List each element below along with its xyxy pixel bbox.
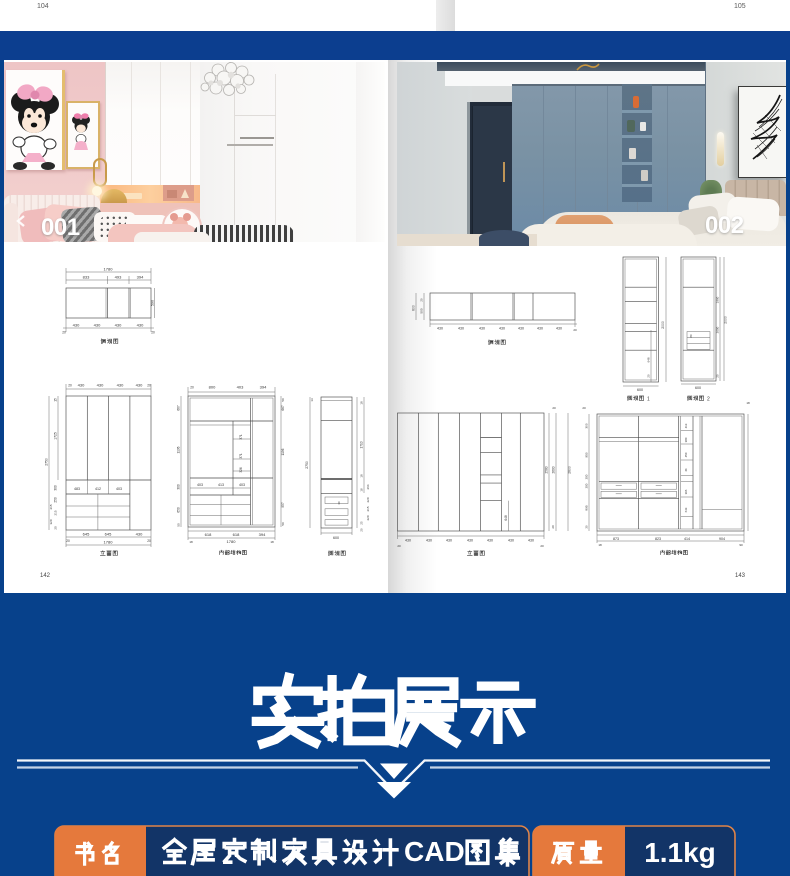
- svg-text:20: 20: [147, 539, 151, 543]
- svg-text:20: 20: [151, 331, 155, 335]
- svg-text:430: 430: [117, 383, 124, 388]
- svg-text:1196: 1196: [281, 448, 285, 455]
- svg-text:590: 590: [151, 300, 155, 306]
- svg-text:20: 20: [66, 539, 70, 543]
- svg-text:895: 895: [585, 505, 589, 510]
- svg-text:18: 18: [360, 401, 364, 405]
- svg-text:20: 20: [540, 544, 544, 548]
- svg-text:430: 430: [537, 327, 543, 331]
- svg-text:80: 80: [689, 334, 693, 338]
- svg-text:300: 300: [54, 485, 58, 491]
- svg-text:25: 25: [360, 521, 364, 525]
- svg-text:430: 430: [458, 327, 464, 331]
- svg-text:1960: 1960: [716, 296, 720, 303]
- svg-text:18: 18: [746, 401, 750, 405]
- svg-text:50: 50: [281, 398, 285, 402]
- svg-text:2580: 2580: [545, 466, 549, 473]
- svg-text:403: 403: [116, 487, 122, 491]
- svg-text:20: 20: [68, 384, 72, 388]
- svg-text:20: 20: [54, 526, 58, 530]
- svg-text:394: 394: [260, 385, 267, 390]
- svg-text:618: 618: [233, 532, 240, 537]
- svg-text:1: 1: [647, 397, 650, 403]
- svg-text:833: 833: [83, 275, 90, 280]
- svg-text:430: 430: [94, 323, 101, 328]
- svg-text:20: 20: [190, 386, 194, 390]
- svg-text:430: 430: [115, 323, 122, 328]
- svg-text:2: 2: [707, 397, 710, 403]
- svg-text:18: 18: [598, 543, 602, 547]
- svg-text:823: 823: [655, 537, 661, 541]
- svg-text:413: 413: [684, 423, 688, 428]
- svg-text:430: 430: [405, 539, 411, 543]
- svg-text:13: 13: [310, 398, 314, 402]
- svg-text:1136: 1136: [177, 446, 181, 453]
- svg-text:1780: 1780: [104, 540, 114, 545]
- svg-text:215: 215: [49, 504, 53, 509]
- svg-text:430: 430: [556, 327, 562, 331]
- svg-text:20: 20: [647, 374, 651, 378]
- svg-text:20: 20: [420, 298, 424, 302]
- svg-text:414: 414: [684, 537, 690, 541]
- svg-text:220: 220: [366, 515, 370, 520]
- svg-text:412: 412: [95, 487, 101, 491]
- svg-text:645: 645: [105, 532, 112, 537]
- svg-text:430: 430: [446, 539, 452, 543]
- svg-text:483: 483: [74, 487, 80, 491]
- svg-text:215: 215: [54, 510, 58, 515]
- svg-text:430: 430: [508, 539, 514, 543]
- svg-text:2600: 2600: [552, 466, 556, 473]
- svg-text:20: 20: [147, 384, 151, 388]
- svg-text:500: 500: [420, 308, 424, 313]
- svg-text:2750: 2750: [45, 458, 49, 466]
- svg-text:493: 493: [115, 275, 122, 280]
- svg-text:1780: 1780: [227, 539, 237, 544]
- svg-text:403: 403: [239, 483, 245, 487]
- svg-text:264: 264: [366, 484, 370, 489]
- svg-text:18: 18: [360, 474, 364, 478]
- svg-text:15: 15: [54, 398, 58, 402]
- svg-text:1725: 1725: [54, 432, 58, 440]
- svg-text:20: 20: [716, 374, 720, 378]
- svg-text:600: 600: [695, 386, 701, 390]
- svg-text:300: 300: [585, 423, 589, 428]
- svg-text:800: 800: [209, 385, 216, 390]
- svg-text:380: 380: [684, 437, 688, 442]
- svg-text:18: 18: [270, 540, 274, 544]
- svg-text:30: 30: [585, 525, 589, 529]
- svg-text:618: 618: [205, 532, 212, 537]
- svg-text:1780: 1780: [104, 267, 114, 272]
- svg-text:600: 600: [637, 388, 643, 392]
- svg-text:250: 250: [54, 497, 58, 503]
- svg-text:413: 413: [218, 483, 224, 487]
- svg-text:2600: 2600: [568, 466, 572, 474]
- svg-text:20: 20: [397, 544, 401, 548]
- svg-text:648: 648: [647, 357, 651, 362]
- svg-text:90: 90: [739, 543, 743, 547]
- svg-text:450: 450: [684, 452, 688, 457]
- svg-text:430: 430: [518, 327, 524, 331]
- svg-text:143: 143: [735, 573, 746, 579]
- svg-text:215: 215: [366, 506, 370, 511]
- svg-text:CAD: CAD: [404, 836, 465, 867]
- svg-text:371: 371: [239, 453, 243, 459]
- svg-text:1.1kg: 1.1kg: [644, 837, 716, 868]
- svg-text:20: 20: [360, 528, 364, 532]
- svg-text:20: 20: [573, 328, 577, 332]
- svg-text:300: 300: [177, 484, 181, 490]
- svg-text:371: 371: [239, 434, 243, 440]
- svg-text:320: 320: [49, 519, 53, 524]
- svg-text:50: 50: [177, 523, 181, 527]
- svg-text:326: 326: [239, 467, 243, 473]
- svg-text:873: 873: [613, 537, 619, 541]
- svg-text:20: 20: [552, 406, 556, 410]
- svg-text:904: 904: [719, 537, 725, 541]
- svg-text:18: 18: [360, 488, 364, 492]
- svg-text:600: 600: [412, 305, 416, 311]
- svg-text:394: 394: [259, 532, 266, 537]
- svg-text:30: 30: [337, 501, 341, 505]
- svg-text:667: 667: [281, 405, 285, 411]
- svg-text:44: 44: [684, 468, 688, 471]
- svg-text:2000: 2000: [716, 326, 720, 333]
- svg-text:430: 430: [499, 327, 505, 331]
- svg-text:430: 430: [78, 383, 85, 388]
- svg-text:430: 430: [426, 539, 432, 543]
- svg-text:2000: 2000: [661, 321, 665, 329]
- svg-text:430: 430: [136, 383, 143, 388]
- svg-text:403: 403: [197, 483, 203, 487]
- svg-text:430: 430: [437, 327, 443, 331]
- svg-text:20: 20: [62, 331, 66, 335]
- svg-text:667: 667: [177, 405, 181, 411]
- svg-text:2750: 2750: [305, 461, 309, 469]
- svg-text:2000: 2000: [724, 316, 728, 324]
- svg-text:650: 650: [177, 507, 181, 513]
- svg-text:430: 430: [136, 532, 143, 537]
- svg-text:50: 50: [281, 522, 285, 526]
- svg-text:430: 430: [137, 323, 144, 328]
- svg-text:200: 200: [585, 474, 589, 479]
- svg-text:648: 648: [504, 515, 508, 521]
- svg-text:643: 643: [684, 507, 688, 512]
- svg-text:142: 142: [40, 573, 51, 579]
- svg-text:396: 396: [684, 489, 688, 494]
- svg-text:18: 18: [189, 540, 193, 544]
- svg-text:403: 403: [237, 385, 244, 390]
- svg-text:20: 20: [551, 525, 555, 529]
- svg-text:950: 950: [585, 452, 589, 457]
- svg-text:430: 430: [73, 323, 80, 328]
- svg-text:430: 430: [528, 539, 534, 543]
- svg-text:430: 430: [467, 539, 473, 543]
- svg-text:220: 220: [366, 497, 370, 502]
- svg-text:430: 430: [97, 383, 104, 388]
- svg-text:645: 645: [83, 532, 90, 537]
- svg-text:1710: 1710: [360, 441, 364, 448]
- svg-text:600: 600: [333, 536, 339, 540]
- svg-text:394: 394: [137, 275, 144, 280]
- svg-text:200: 200: [585, 483, 589, 488]
- svg-text:430: 430: [487, 539, 493, 543]
- svg-text:430: 430: [479, 327, 485, 331]
- svg-text:957: 957: [281, 502, 285, 508]
- svg-text:20: 20: [582, 406, 586, 410]
